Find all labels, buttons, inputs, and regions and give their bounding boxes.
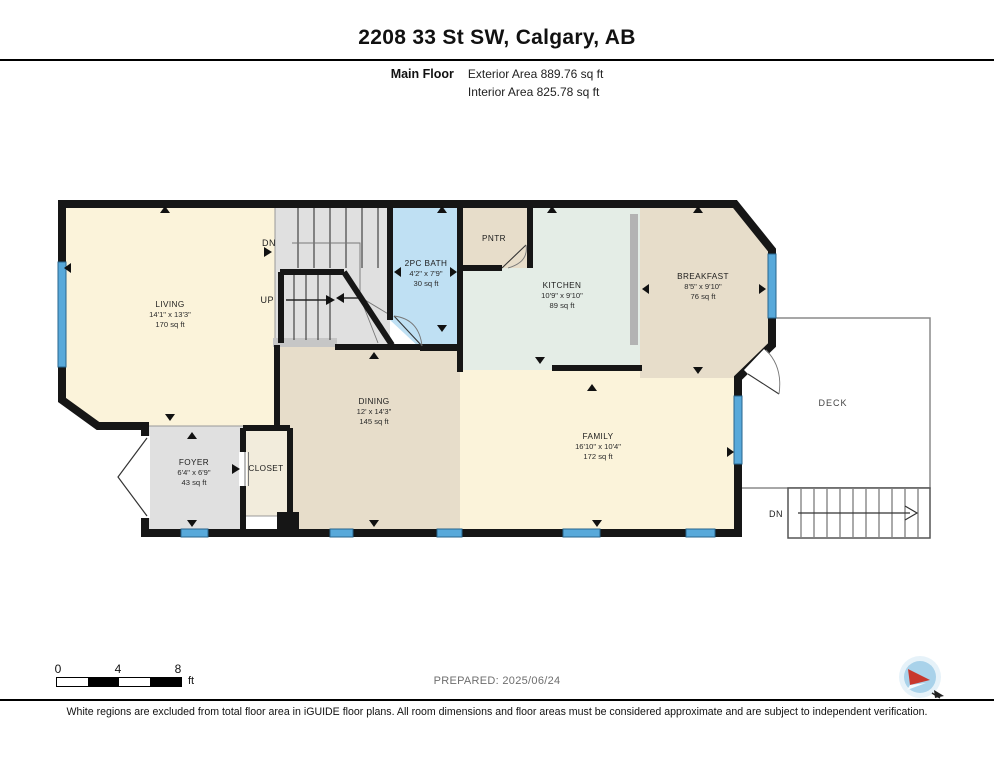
living-label: LIVING bbox=[155, 300, 184, 309]
window-foyer-bottom bbox=[181, 529, 208, 537]
scale-tick-4: 4 bbox=[108, 662, 128, 676]
window-family-bottom-2 bbox=[686, 529, 715, 537]
foyer-dims: 6'4" x 6'9" bbox=[177, 468, 211, 477]
dining-area: 145 sq ft bbox=[359, 417, 389, 426]
floor-plan: LIVING 14'1" x 13'3" 170 sq ft 2PC BATH … bbox=[0, 0, 994, 768]
foyer-area: 43 sq ft bbox=[182, 478, 208, 487]
scale-tick-8: 8 bbox=[168, 662, 188, 676]
disclaimer-text: White regions are excluded from total fl… bbox=[0, 706, 994, 718]
up-label: UP bbox=[260, 295, 274, 305]
breakfast-dims: 8'5" x 9'10" bbox=[684, 282, 722, 291]
room-dining-area bbox=[277, 345, 460, 530]
wall-pillar bbox=[277, 512, 299, 533]
window-dining-bottom bbox=[330, 529, 353, 537]
bath-label: 2PC BATH bbox=[405, 259, 448, 268]
dn-label: DN bbox=[262, 238, 276, 248]
breakfast-label: BREAKFAST bbox=[677, 272, 729, 281]
dining-dims: 12' x 14'3" bbox=[357, 407, 392, 416]
deck-dn-label: DN bbox=[769, 509, 783, 519]
living-area: 170 sq ft bbox=[155, 320, 185, 329]
bath-area: 30 sq ft bbox=[414, 279, 440, 288]
living-dims: 14'1" x 13'3" bbox=[149, 310, 191, 319]
kitchen-dims: 10'9" x 9'10" bbox=[541, 291, 583, 300]
window-dining-bottom-2 bbox=[437, 529, 462, 537]
kitchen-area: 89 sq ft bbox=[550, 301, 576, 310]
kitchen-cabinet-strip bbox=[630, 214, 638, 345]
dining-label: DINING bbox=[358, 397, 389, 406]
foyer-label: FOYER bbox=[179, 458, 209, 467]
closet-label: CLOSET bbox=[248, 464, 283, 473]
iguide-compass-logo bbox=[892, 652, 952, 702]
family-label: FAMILY bbox=[583, 432, 614, 441]
deck-label: DECK bbox=[818, 398, 847, 408]
family-area: 172 sq ft bbox=[583, 452, 613, 461]
breakfast-area: 76 sq ft bbox=[691, 292, 717, 301]
window-breakfast-right bbox=[768, 254, 776, 318]
prepared-date: PREPARED: 2025/06/24 bbox=[0, 675, 994, 687]
family-dims: 16'10" x 10'4" bbox=[575, 442, 621, 451]
window-family-bottom bbox=[563, 529, 600, 537]
pantry-label: PNTR bbox=[482, 234, 506, 243]
window-living-left bbox=[58, 262, 66, 367]
kitchen-label: KITCHEN bbox=[543, 281, 582, 290]
scale-tick-0: 0 bbox=[48, 662, 68, 676]
footer-divider bbox=[0, 699, 994, 701]
window-family-right bbox=[734, 396, 742, 464]
bath-dims: 4'2" x 7'9" bbox=[409, 269, 443, 278]
